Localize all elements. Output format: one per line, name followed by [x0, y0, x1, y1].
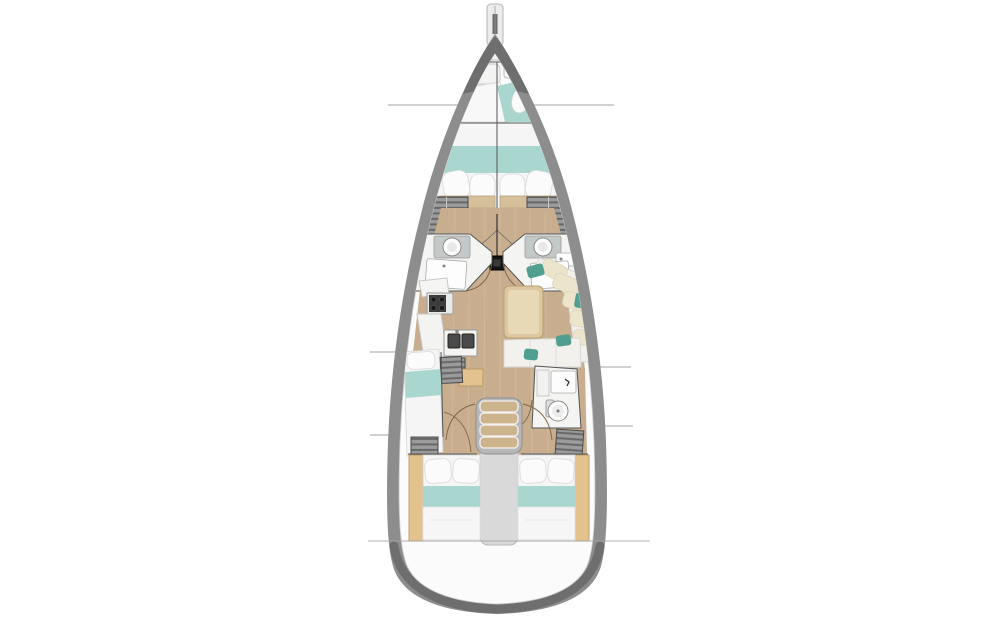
- toilet-seat: [538, 242, 548, 252]
- yacht-floor-plan-canvas: [0, 0, 1000, 625]
- burner-2: [439, 297, 444, 302]
- accent-pillow-4: [524, 348, 539, 360]
- step-3: [480, 425, 518, 436]
- faucet: [560, 258, 563, 261]
- burner-1: [431, 297, 436, 302]
- accent-pillow-3: [555, 334, 571, 347]
- galley-faucet: [455, 330, 459, 334]
- burner-4: [439, 305, 444, 310]
- sink-basin-2: [462, 334, 474, 348]
- faucet: [443, 265, 446, 268]
- aft-cabin-port: [408, 454, 480, 541]
- midship-locker-top: [440, 356, 462, 383]
- toilet-seat: [447, 242, 457, 252]
- step-4: [480, 437, 518, 448]
- aft-cabin-starboard: [518, 454, 589, 541]
- forepeak-cabinet: [437, 84, 464, 101]
- toilet-drain: [557, 410, 560, 413]
- blanket-band: [423, 486, 480, 507]
- shelf: [537, 370, 549, 396]
- step-2: [480, 413, 518, 424]
- pillow-2: [452, 458, 479, 483]
- pillow-2: [547, 458, 575, 484]
- burner-3: [431, 305, 436, 310]
- pillow-1: [519, 458, 546, 483]
- sink-basin-1: [448, 334, 460, 348]
- duvet: [423, 507, 480, 540]
- interior: [404, 44, 597, 545]
- locker-aft-starboard: [555, 429, 584, 456]
- headboard-shelf: [409, 455, 423, 541]
- mast-step-inner: [494, 260, 501, 267]
- pillow-1: [424, 458, 452, 484]
- saloon-table-leaf: [508, 290, 539, 334]
- blanket-band: [518, 486, 575, 507]
- engine-box-landing: [480, 440, 518, 545]
- duvet: [518, 507, 575, 540]
- midship-blanket: [405, 369, 442, 398]
- midship-pillow: [407, 351, 436, 369]
- yacht-floor-plan: [0, 0, 1000, 625]
- headboard-shelf: [575, 455, 589, 541]
- step-1: [480, 401, 518, 412]
- louver-doors: [555, 429, 584, 456]
- shower-sink-unit: [551, 371, 576, 393]
